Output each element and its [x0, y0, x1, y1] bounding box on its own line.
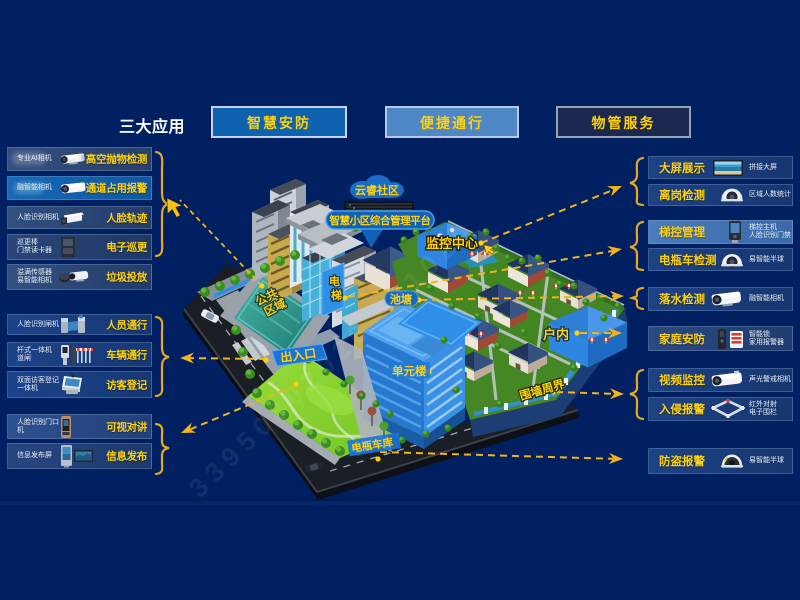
svg-text:智慧小区综合管理平台: 智慧小区综合管理平台	[329, 214, 431, 227]
svg-text:监控中心: 监控中心	[426, 236, 478, 251]
svg-text:池塘: 池塘	[390, 292, 412, 306]
svg-text:云睿社区: 云睿社区	[355, 183, 399, 197]
svg-text:电: 电	[329, 274, 340, 288]
svg-text:梯: 梯	[331, 288, 342, 302]
svg-text:单元楼: 单元楼	[392, 364, 427, 378]
svg-text:户内: 户内	[543, 327, 569, 342]
